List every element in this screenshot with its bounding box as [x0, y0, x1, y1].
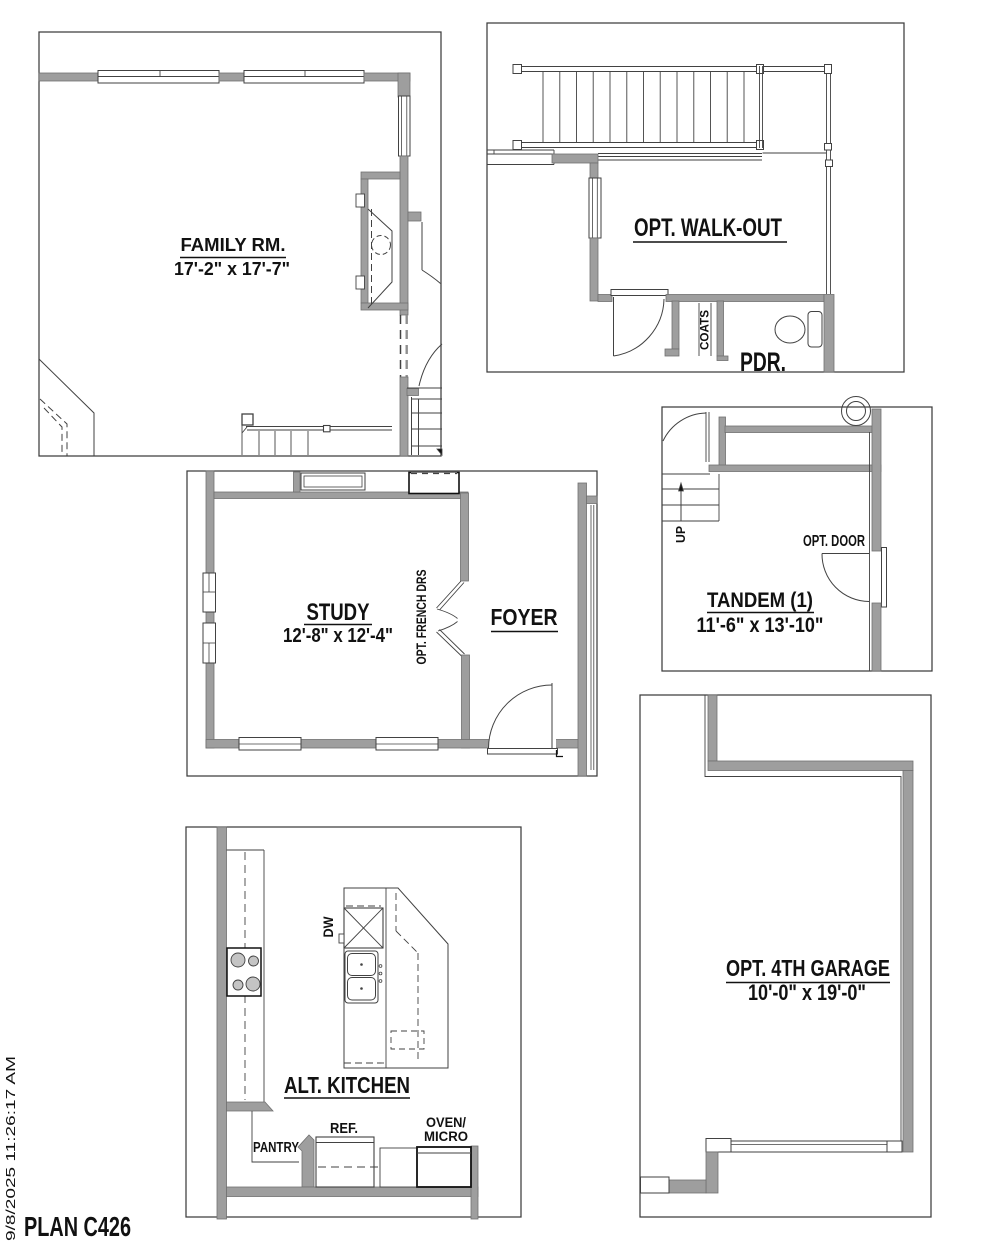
svg-text:17'-2" x 17'-7": 17'-2" x 17'-7"	[174, 258, 290, 279]
svg-text:OPT. FRENCH DRS: OPT. FRENCH DRS	[414, 570, 429, 665]
svg-text:OPT. DOOR: OPT. DOOR	[803, 533, 865, 550]
svg-text:11'-6" x 13'-10": 11'-6" x 13'-10"	[697, 614, 824, 637]
svg-text:12'-8" x 12'-4": 12'-8" x 12'-4"	[283, 624, 393, 647]
svg-text:STUDY: STUDY	[307, 599, 370, 626]
svg-text:ALT. KITCHEN: ALT. KITCHEN	[284, 1072, 410, 1098]
svg-text:PDR.: PDR.	[740, 347, 786, 377]
svg-text:COATS: COATS	[700, 310, 712, 350]
svg-text:UP: UP	[673, 526, 688, 543]
svg-text:PLAN C426: PLAN C426	[24, 1211, 131, 1242]
svg-text:FOYER: FOYER	[491, 604, 558, 630]
svg-text:OPT. WALK-OUT: OPT. WALK-OUT	[634, 214, 782, 242]
svg-text:PANTRY: PANTRY	[253, 1140, 299, 1156]
svg-text:10'-0" x 19'-0": 10'-0" x 19'-0"	[748, 980, 866, 1005]
svg-text:TANDEM (1): TANDEM (1)	[707, 589, 813, 612]
svg-text:DW: DW	[321, 916, 336, 937]
svg-text:9/8/2025 11:26:17 AM: 9/8/2025 11:26:17 AM	[4, 1056, 18, 1241]
svg-text:REF.: REF.	[330, 1121, 358, 1137]
svg-text:OPT. 4TH GARAGE: OPT. 4TH GARAGE	[726, 955, 890, 981]
svg-text:OVEN/: OVEN/	[426, 1115, 466, 1130]
svg-text:MICRO: MICRO	[424, 1129, 468, 1144]
svg-text:FAMILY RM.: FAMILY RM.	[181, 234, 286, 255]
